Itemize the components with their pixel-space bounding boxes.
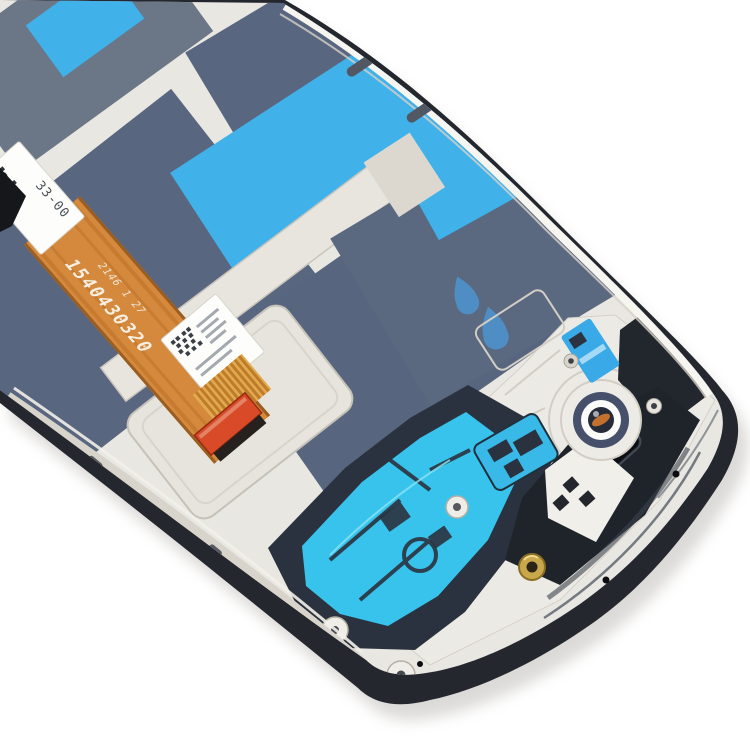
front-camera-hole [561, 380, 641, 460]
screw-hole [564, 354, 578, 368]
screw-hole [647, 399, 662, 414]
rim-hole [603, 577, 610, 584]
gold-screw-hole [519, 554, 545, 580]
rim-hole [417, 661, 423, 667]
photo-canvas: 1540430320 2146 1 27 33-00 [0, 0, 750, 750]
screw-hole [446, 496, 468, 518]
product-photo: 1540430320 2146 1 27 33-00 [0, 0, 750, 750]
rim-hole [673, 471, 680, 478]
